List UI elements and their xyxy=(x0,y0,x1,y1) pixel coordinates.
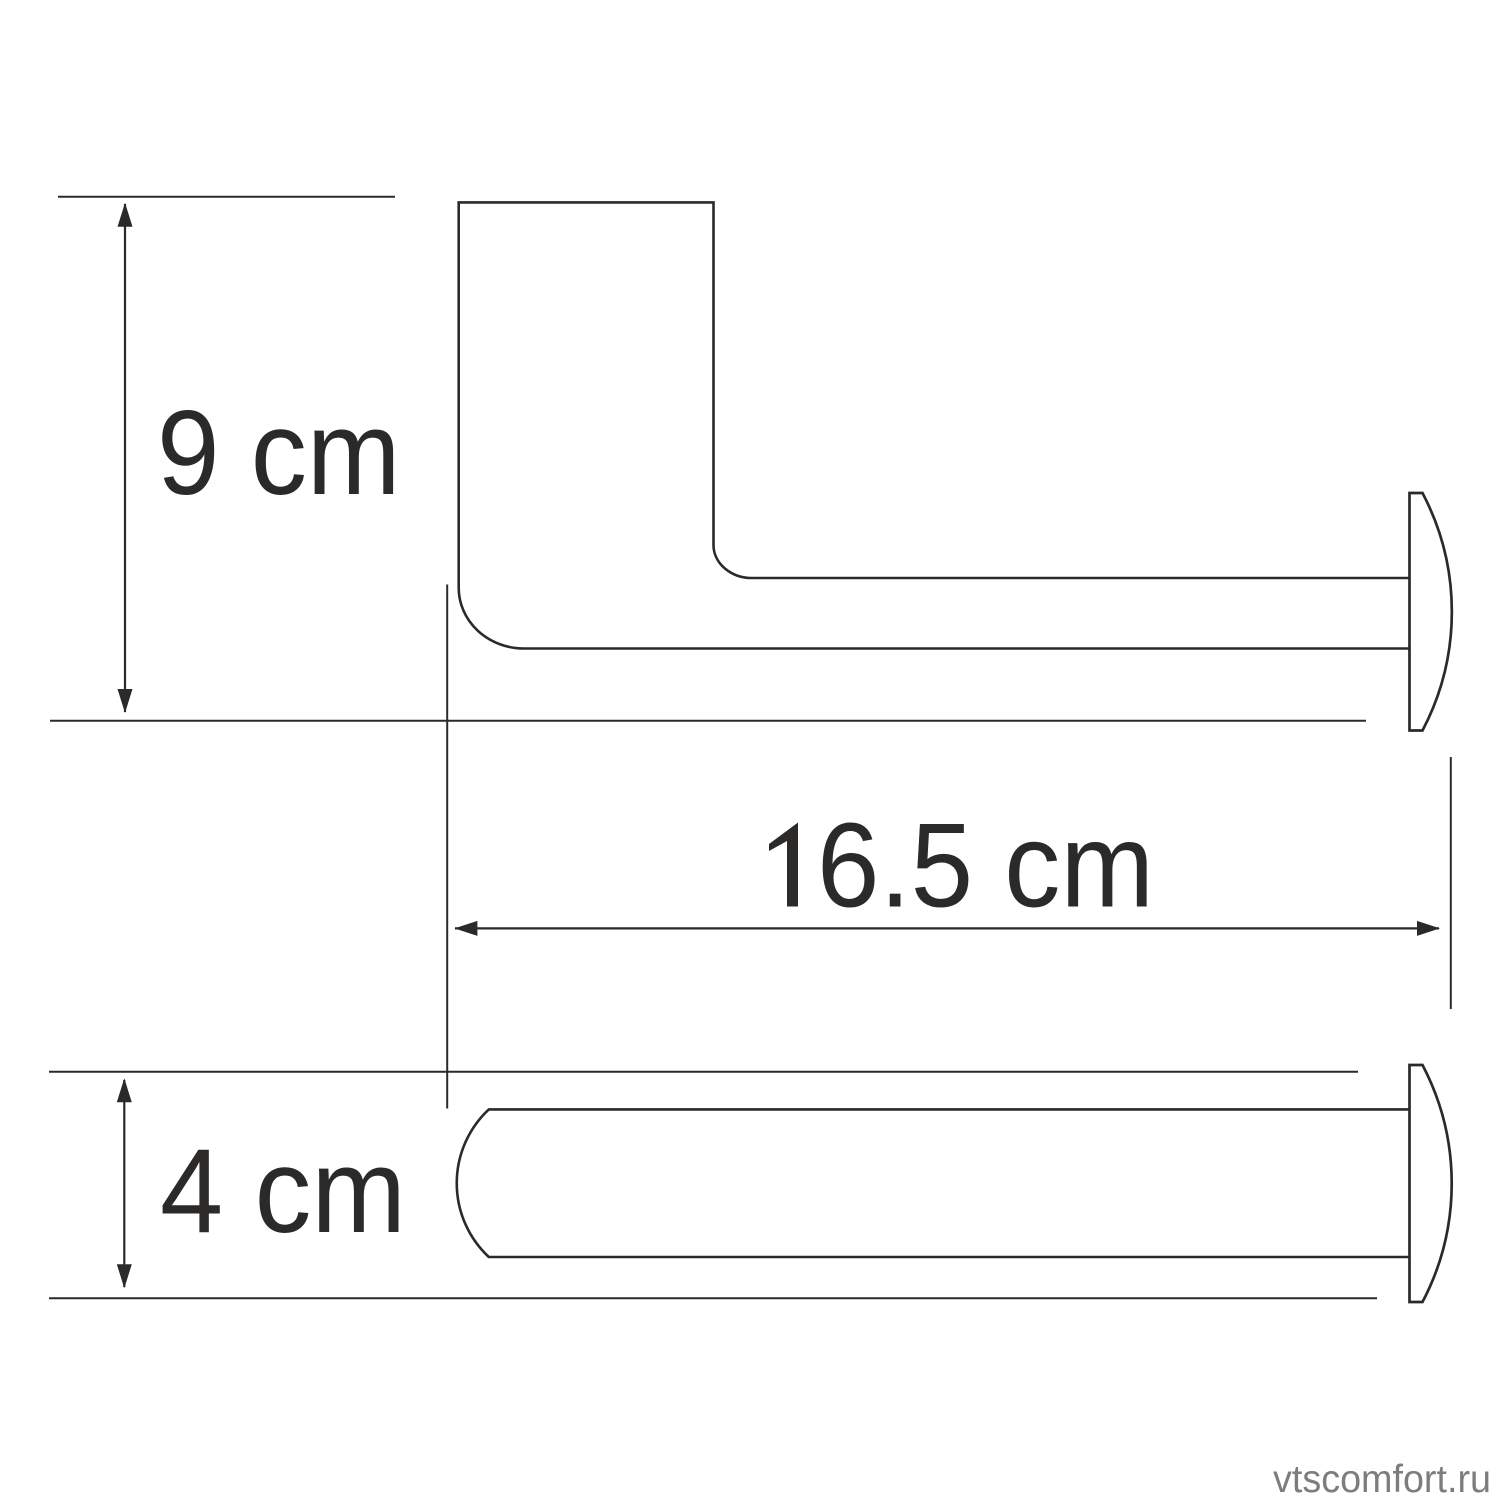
svg-text:6.5 cm: 6.5 cm xyxy=(817,799,1154,933)
svg-text:9 cm: 9 cm xyxy=(157,386,401,520)
svg-text:4 cm: 4 cm xyxy=(160,1124,406,1258)
svg-text:vtscomfort.ru: vtscomfort.ru xyxy=(1273,1458,1491,1500)
